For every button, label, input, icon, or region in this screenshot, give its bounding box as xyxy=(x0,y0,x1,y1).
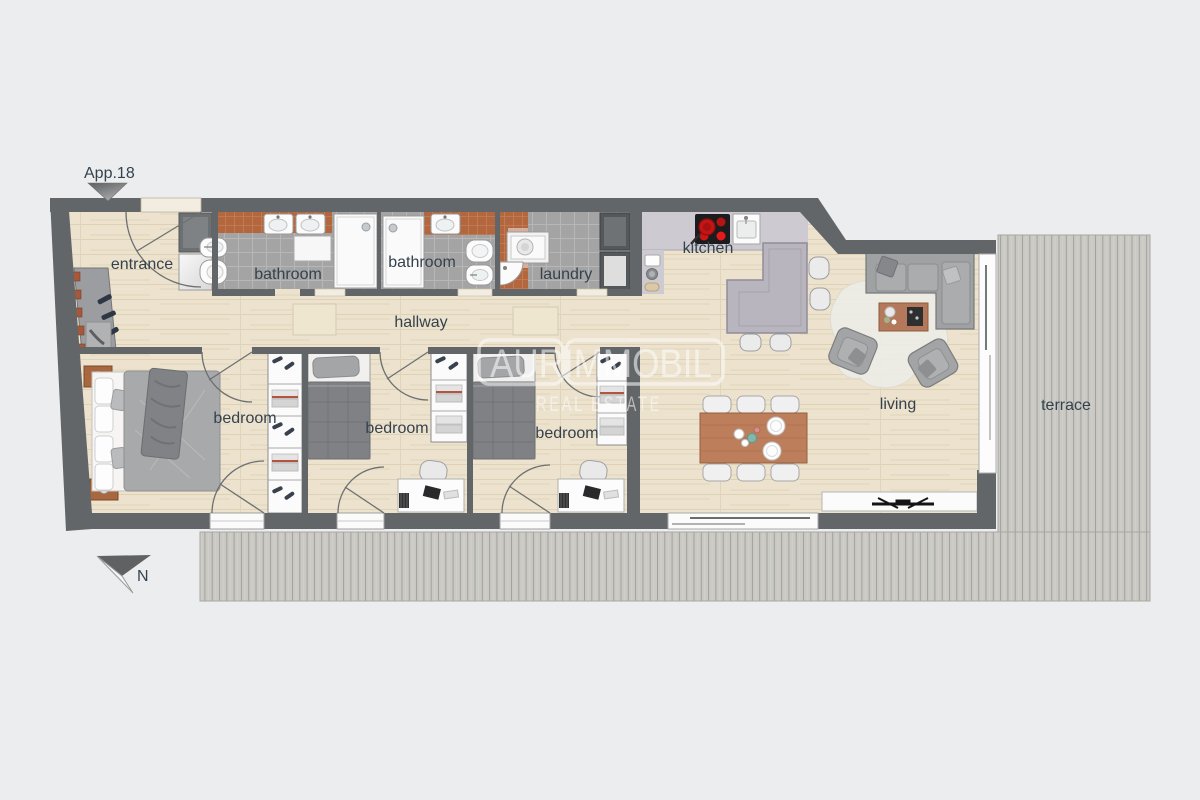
washer-dryer-stack xyxy=(600,213,630,290)
kitchen-tray xyxy=(645,283,659,291)
kitchen-sink-icon xyxy=(733,214,760,244)
room-label-hallway: hallway xyxy=(394,314,447,331)
wall-top xyxy=(201,198,814,212)
shower-icon xyxy=(334,214,377,288)
floor-plan-page: AURIMMOBIL REAL ESTATE entrance bathroom… xyxy=(0,0,1200,800)
doormat xyxy=(293,304,336,335)
door-threshold xyxy=(577,289,607,296)
double-bed xyxy=(92,368,220,491)
floor-plan-canvas: AURIMMOBIL REAL ESTATE entrance bathroom… xyxy=(0,0,1200,800)
room-label-bedroom-3: bedroom xyxy=(535,425,598,442)
sink-icon xyxy=(264,214,293,234)
sliding-door xyxy=(668,513,818,529)
washing-machine-icon xyxy=(507,232,549,263)
shower-icon xyxy=(383,216,424,288)
door-opening xyxy=(275,289,300,296)
room-label-laundry: laundry xyxy=(540,266,592,283)
dining-set xyxy=(700,396,807,481)
wardrobe-column xyxy=(268,352,302,513)
terrace-deck-bottom xyxy=(200,532,1150,601)
room-label-entrance: entrance xyxy=(111,256,173,273)
bidet-icon xyxy=(466,265,493,285)
wardrobe-column xyxy=(431,352,467,442)
single-bed xyxy=(308,353,370,459)
room-label-terrace: terrace xyxy=(1041,397,1091,414)
coffee-table xyxy=(879,303,928,331)
room-label-bathroom-1: bathroom xyxy=(254,266,322,283)
apartment-marker: App.18 xyxy=(84,165,135,201)
watermark-tagline: REAL ESTATE xyxy=(536,393,662,416)
toilet-icon xyxy=(466,240,493,262)
room-label-living: living xyxy=(880,396,916,413)
apartment-number-label: App.18 xyxy=(84,165,135,182)
room-label-bedroom-master: bedroom xyxy=(213,410,276,427)
room-label-kitchen: kitchen xyxy=(683,240,734,257)
compass: N xyxy=(97,555,151,593)
glass-wall xyxy=(979,254,996,473)
sink-icon xyxy=(431,214,460,234)
bath-cabinet xyxy=(294,236,331,261)
room-label-bathroom-2: bathroom xyxy=(388,254,456,271)
doormat xyxy=(513,307,558,335)
door-threshold xyxy=(458,289,492,296)
watermark-brand: AURIMMOBIL xyxy=(490,342,712,386)
tv-sideboard xyxy=(822,492,977,511)
door-threshold xyxy=(315,289,345,296)
north-label: N xyxy=(137,568,149,585)
bedroom-master-furniture xyxy=(84,366,220,500)
kitchen-small-appliance xyxy=(645,255,660,266)
shoe-bench xyxy=(86,322,111,349)
entrance-door-threshold xyxy=(141,198,201,212)
sink-icon xyxy=(296,214,325,234)
wall-corner-pillar xyxy=(977,470,996,515)
room-label-bedroom-2: bedroom xyxy=(365,420,428,437)
